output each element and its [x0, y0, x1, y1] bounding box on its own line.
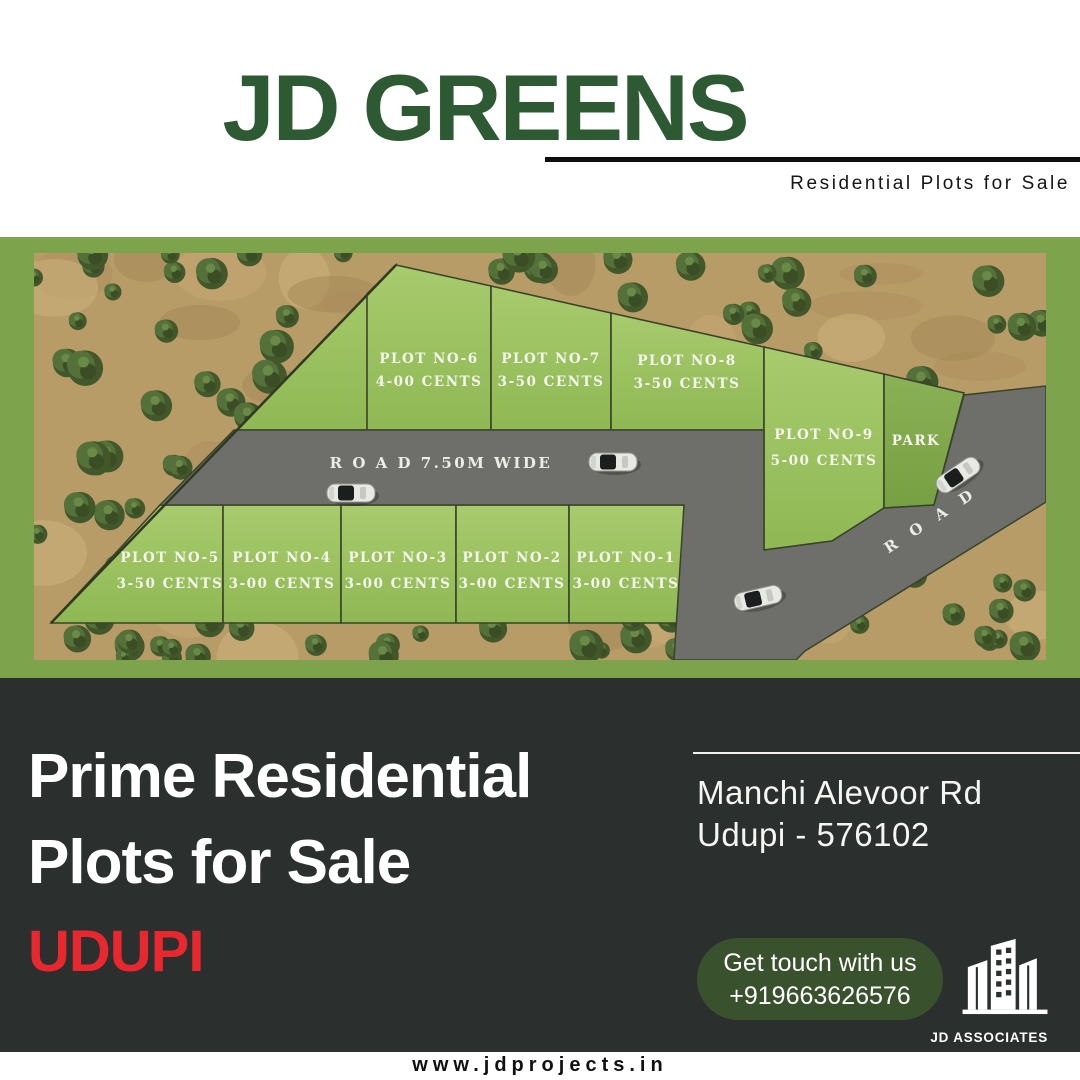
car-icon [589, 453, 641, 475]
header-rule [545, 157, 1080, 162]
header: JD GREENS Residential Plots for Sale [0, 0, 1080, 237]
header-subtitle: Residential Plots for Sale [790, 173, 1070, 195]
plot-4-name: PLOT NO-4 [232, 550, 331, 566]
plot-6 [367, 265, 491, 430]
plot-2-name: PLOT NO-2 [462, 550, 561, 566]
plot-8-area: 3-50 CENTS [634, 376, 741, 392]
website-url: www.jdprojects.in [0, 1052, 1080, 1078]
headline-line1: Prime Residential [28, 734, 531, 820]
plot-4-area: 3-00 CENTS [229, 576, 336, 592]
plot-5-name: PLOT NO-5 [120, 550, 219, 566]
park-label: PARK [892, 433, 941, 449]
plot-7-area: 3-50 CENTS [498, 374, 605, 390]
plot-6-area: 4-00 CENTS [376, 374, 483, 390]
brand-name: JD ASSOCIATES [930, 1030, 1048, 1045]
headline-line2: Plots for Sale [28, 820, 531, 906]
plot-5-area: 3-50 CENTS [117, 576, 224, 592]
flyer: JD GREENS Residential Plots for Sale [0, 0, 1080, 1080]
plot-6-name: PLOT NO-6 [379, 351, 478, 367]
site-plan-band: PLOT NO-13-00 CENTSPLOT NO-23-00 CENTSPL… [0, 237, 1080, 678]
address-line2: Udupi - 576102 [697, 816, 930, 854]
footer: www.jdprojects.in [0, 1052, 1080, 1080]
plot-7-name: PLOT NO-7 [501, 351, 600, 367]
plot-8-name: PLOT NO-8 [637, 353, 736, 369]
headline: Prime Residential Plots for Sale [28, 734, 531, 906]
plot-2-area: 3-00 CENTS [459, 576, 566, 592]
plot-9-area: 5-00 CENTS [771, 453, 878, 469]
address-divider [693, 752, 1080, 754]
contact-button-label: Get touch with us [697, 947, 943, 980]
plot-9-name: PLOT NO-9 [774, 427, 873, 443]
brand-title: JD GREENS [0, 58, 1025, 158]
contact-button[interactable]: Get touch with us +919663626576 [697, 938, 943, 1020]
promo-section: Prime Residential Plots for Sale UDUPI M… [0, 678, 1080, 1052]
buildings-logo-icon [960, 930, 1050, 1022]
car-icon [327, 484, 379, 506]
contact-phone: +919663626576 [697, 980, 943, 1013]
plot-1-name: PLOT NO-1 [576, 550, 675, 566]
city-label: UDUPI [28, 918, 203, 985]
plot-3-name: PLOT NO-3 [348, 550, 447, 566]
plot-1-area: 3-00 CENTS [573, 576, 680, 592]
address-line1: Manchi Alevoor Rd [697, 774, 982, 812]
site-plan-map: PLOT NO-13-00 CENTSPLOT NO-23-00 CENTSPL… [34, 253, 1046, 660]
plot-3-area: 3-00 CENTS [345, 576, 452, 592]
road-label: R O A D 7.50M WIDE [330, 454, 553, 472]
